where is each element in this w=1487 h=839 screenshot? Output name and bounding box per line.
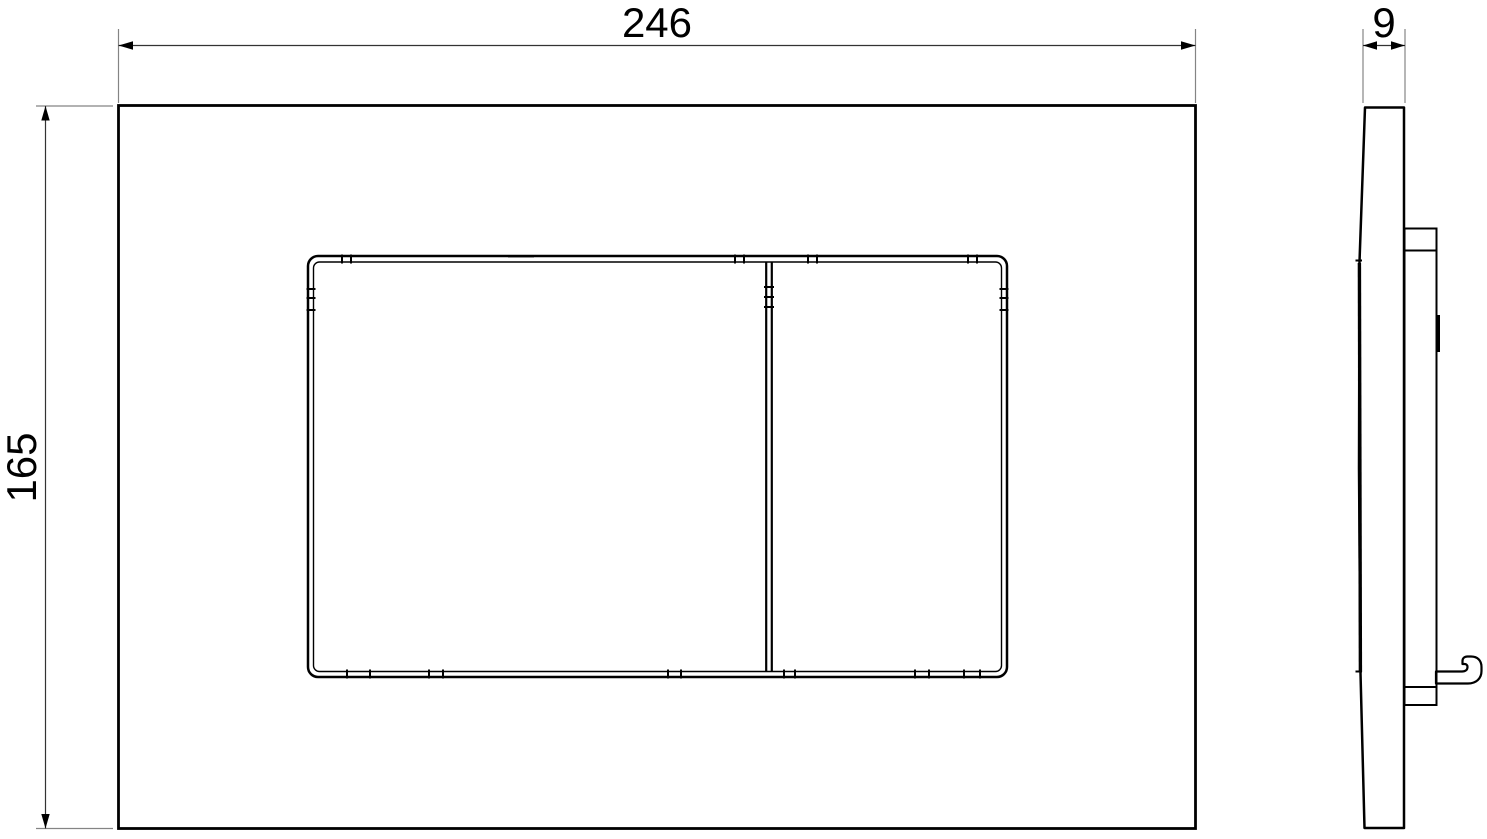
arrowhead-down-icon: [41, 814, 49, 829]
mounting-bracket: [1405, 229, 1441, 706]
dimension-depth: 9: [1363, 0, 1405, 103]
arrowhead-up-icon: [41, 106, 49, 121]
dimension-height: 165: [0, 106, 113, 829]
bracket-body: [1405, 229, 1437, 706]
arrowhead-right-icon: [1181, 41, 1196, 49]
bracket-clip: [1436, 315, 1441, 352]
dimension-width: 246: [119, 0, 1196, 103]
plate-outline: [119, 106, 1196, 829]
flush-plate-technical-drawing: 246 165 9: [0, 0, 1487, 839]
plate-profile-outline: [1359, 108, 1404, 829]
mounting-hook: [1436, 657, 1482, 684]
dimension-height-label: 165: [0, 432, 45, 502]
plate-face-edge: [1359, 263, 1360, 672]
dimension-depth-label: 9: [1372, 0, 1395, 46]
dimension-width-label: 246: [622, 0, 692, 46]
drawing-canvas: 246 165 9: [0, 0, 1487, 839]
arrowhead-left-icon: [119, 41, 134, 49]
front-view: [119, 106, 1196, 829]
plate-side-profile: [1356, 108, 1405, 829]
side-view: [1356, 108, 1482, 829]
